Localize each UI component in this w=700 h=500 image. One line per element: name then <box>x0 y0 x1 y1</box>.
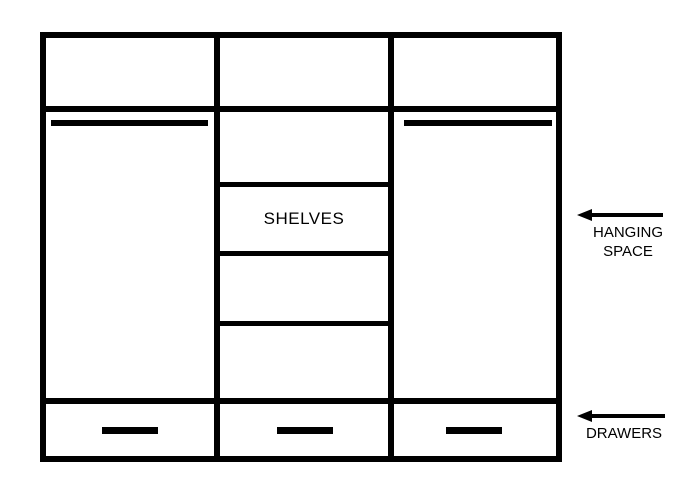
drawer-handle-right <box>446 427 502 434</box>
shelf-line-2 <box>220 251 388 256</box>
hanging-space-label-line1: HANGING <box>580 223 676 242</box>
hanging-rail-left <box>51 120 208 126</box>
shelves-label: SHELVES <box>220 187 388 251</box>
hanging-space-label-line2: SPACE <box>580 242 676 261</box>
drawer-handle-left <box>102 427 158 434</box>
hanging-rail-right <box>404 120 552 126</box>
shelf-line-3 <box>220 321 388 326</box>
hanging-space-label: HANGING SPACE <box>580 223 676 261</box>
top-compartment-divider <box>40 106 562 112</box>
hanging-arrow-shaft <box>590 213 663 217</box>
drawers-arrow-shaft <box>590 414 665 418</box>
drawer-handle-middle <box>277 427 333 434</box>
drawer-row-divider <box>40 398 562 404</box>
drawers-label: DRAWERS <box>576 424 672 443</box>
wardrobe-diagram: SHELVES HANGING SPACE DRAWERS <box>0 0 700 500</box>
